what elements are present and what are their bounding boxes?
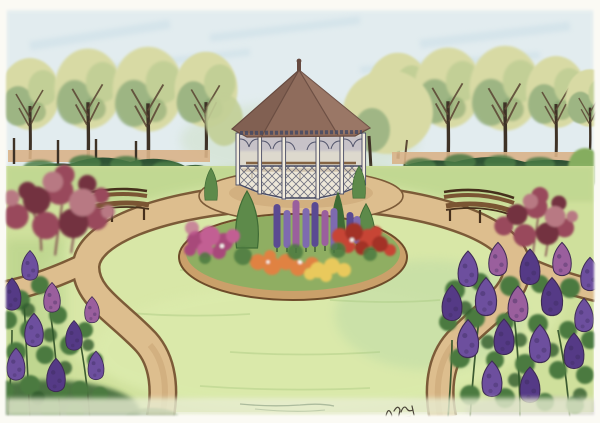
bottom-paper-wash <box>6 398 594 416</box>
roof-finial <box>297 59 302 71</box>
watercolor-garden-painting <box>0 0 600 423</box>
